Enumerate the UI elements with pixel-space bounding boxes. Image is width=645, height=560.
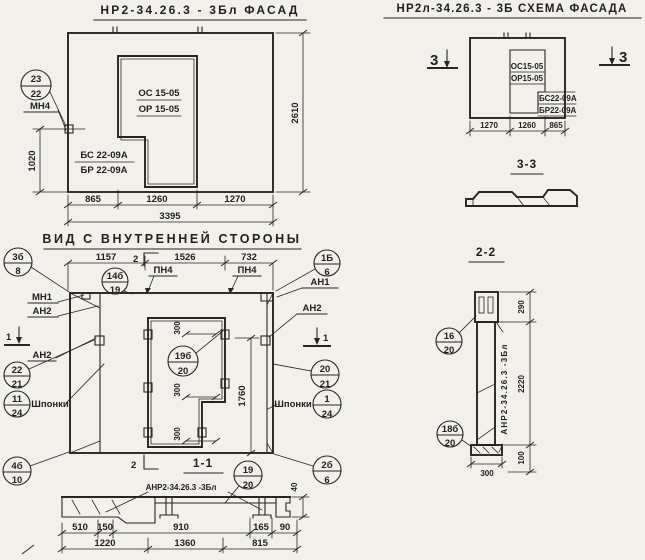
dim-1220: 1220 xyxy=(94,538,115,549)
dim-732: 732 xyxy=(241,252,257,263)
schema-block-mark-2: БР22-09А xyxy=(539,106,577,115)
pos-bottom: 21 xyxy=(12,379,23,390)
section-3-3-profile xyxy=(466,190,577,206)
section-1-1-label: АНР2-34.26.3 -3Бл xyxy=(146,483,217,492)
dim-3395: 3395 xyxy=(159,211,181,222)
dim-1526: 1526 xyxy=(174,252,195,263)
facade-title: НР2-34.26.3 - 3Бл ФАСАД xyxy=(100,3,299,17)
schema-opening-mark-2: ОР15-05 xyxy=(511,74,544,83)
cut-mark-1-left: 1 xyxy=(6,332,12,343)
pos-top: 19б xyxy=(175,351,192,362)
pos-bottom: 8 xyxy=(15,266,20,277)
dim-1760: 1760 xyxy=(237,385,248,406)
pos-bottom: 20 xyxy=(444,345,455,356)
dim-1157: 1157 xyxy=(96,252,117,263)
inner-view-callouts-right: 1Б 6 АН1 АН2 1 20 21 Шпонки 1 24 2б 6 xyxy=(268,250,341,486)
facade-block-mark-2: БР 22-09А xyxy=(81,165,128,176)
section-1-1: 1-1 19 20 АНР2-34.26.3 -3Бл 40 510 150 xyxy=(22,456,309,554)
facade-block-mark-1: БС 22-09А xyxy=(80,150,128,161)
pos-bottom: 21 xyxy=(320,379,331,390)
label-an2: АН2 xyxy=(32,306,51,317)
label-an2: АН2 xyxy=(32,350,51,361)
section-mark-3-left: 3 xyxy=(430,52,438,69)
section-1-1-title: 1-1 xyxy=(193,456,213,470)
pos-top: 20 xyxy=(320,364,331,375)
dim-1360: 1360 xyxy=(174,538,195,549)
dim-300: 300 xyxy=(173,383,182,397)
pos-top: 1Б xyxy=(321,253,333,264)
section-rib xyxy=(253,497,271,518)
label-mn1: МН1 xyxy=(32,292,53,303)
pos-bottom: 6 xyxy=(324,475,329,486)
label-pn4: ПН4 xyxy=(238,265,258,276)
dim-510: 510 xyxy=(72,522,88,533)
schema-title: НР2л-34.26.3 - 3Б СХЕМА ФАСАДА xyxy=(396,3,627,15)
pos-top: 2б xyxy=(321,460,332,471)
dim-1260: 1260 xyxy=(146,194,167,205)
label-pn4: ПН4 xyxy=(154,265,174,276)
section-2-2-label: АНР2-34.26.3 -3Бл xyxy=(500,343,509,434)
dim-1260: 1260 xyxy=(518,121,536,130)
dim-300: 300 xyxy=(173,321,182,335)
pos-bottom: 19 xyxy=(110,285,121,296)
section-3-3-title: 3-3 xyxy=(517,157,537,171)
pos-bottom: 24 xyxy=(322,409,333,420)
label-an1: АН1 xyxy=(310,277,330,288)
schema-opening-mark-1: ОС15-05 xyxy=(511,62,544,71)
section-end-block xyxy=(276,497,290,517)
pos-top: 11 xyxy=(12,394,23,405)
dim-40: 40 xyxy=(290,482,299,491)
pos-top: 14б xyxy=(107,271,124,282)
section-2-2-title: 2-2 xyxy=(476,245,496,259)
section-panel-body xyxy=(477,322,495,445)
dim-1270: 1270 xyxy=(224,194,245,205)
key-right-edge xyxy=(261,336,270,345)
cut-mark-2-top: 2 xyxy=(133,254,138,265)
label-keys-right: Шпонки xyxy=(274,399,312,410)
dim-300: 300 xyxy=(173,427,182,441)
section-3-3: 3-3 xyxy=(466,157,577,206)
pos-top: 16 xyxy=(444,331,455,342)
facade-opening-mark-1: ОС 15-05 xyxy=(138,88,180,99)
dim-290: 290 xyxy=(517,300,526,314)
dim-2220: 2220 xyxy=(517,375,526,393)
section-mark-3-right: 3 xyxy=(619,49,627,66)
dim-865: 865 xyxy=(549,121,563,130)
label-keys-left: Шпонки xyxy=(31,399,69,410)
facade-opening-mark-2: ОР 15-05 xyxy=(139,104,180,115)
drawing-sheet: НР2-34.26.3 - 3Бл ФАСАД ОС 15-05 ОР 15-0… xyxy=(0,0,645,560)
inner-view-title: ВИД С ВНУТРЕННЕЙ СТОРОНЫ xyxy=(42,231,301,246)
pos-bottom: 22 xyxy=(31,89,42,100)
dim-165: 165 xyxy=(253,522,270,533)
schema-block-mark-1: БС22-09А xyxy=(539,94,577,103)
dim-1020: 1020 xyxy=(27,150,38,171)
facade-view: НР2-34.26.3 - 3Бл ФАСАД ОС 15-05 ОР 15-0… xyxy=(21,3,306,192)
section-slab-hatched xyxy=(62,497,155,523)
dim-100: 100 xyxy=(517,451,526,465)
anchor-label-mn4: МН4 xyxy=(30,101,51,112)
section-top-block xyxy=(475,292,498,322)
pos-bottom: 10 xyxy=(12,475,23,486)
inner-view-callouts-left: 3б 8 МН1 АН2 1 АН2 22 21 11 24 Шпонки 4б… xyxy=(3,248,104,486)
dim-2610: 2610 xyxy=(290,102,301,123)
inner-opening-outline xyxy=(148,318,225,447)
pos-top: 4б xyxy=(11,461,22,472)
section-2-2: 2-2 АНР2-34.26.3 -3Бл 16 20 18б 20 290 2… xyxy=(436,245,536,478)
pos-top: 22 xyxy=(12,365,23,376)
facade-opening-outline xyxy=(118,56,197,187)
label-an2: АН2 xyxy=(302,303,321,314)
pos-bottom: 20 xyxy=(178,366,189,377)
pos-top: 19 xyxy=(243,465,254,476)
dim-1270: 1270 xyxy=(480,121,498,130)
dim-865: 865 xyxy=(85,194,102,205)
inner-view-top-dims: 1157 1526 732 2 ПН4 ПН4 14б 19 xyxy=(64,252,277,296)
pos-top: 1 xyxy=(324,394,330,405)
dim-150: 150 xyxy=(97,522,113,533)
schema-view: НР2л-34.26.3 - 3Б СХЕМА ФАСАДА ОС15-05 О… xyxy=(384,3,641,136)
section-rib xyxy=(160,497,178,518)
dim-300: 300 xyxy=(480,469,494,478)
pos-bottom: 20 xyxy=(445,438,456,449)
pos-bottom: 20 xyxy=(243,480,254,491)
dim-910: 910 xyxy=(173,522,189,533)
pos-top: 18б xyxy=(442,424,459,435)
technical-drawing: НР2-34.26.3 - 3Бл ФАСАД ОС 15-05 ОР 15-0… xyxy=(0,0,645,560)
pos-top: 3б xyxy=(12,252,23,263)
cut-mark-2-bottom: 2 xyxy=(131,460,136,471)
dim-90: 90 xyxy=(280,522,291,533)
cut-mark-1-right: 1 xyxy=(323,333,329,344)
pos-bottom: 24 xyxy=(12,408,23,419)
pos-top: 23 xyxy=(31,74,42,85)
dim-815: 815 xyxy=(252,538,269,549)
inner-view-inner-dims: 19б 20 300 300 300 1760 2 xyxy=(131,321,259,471)
